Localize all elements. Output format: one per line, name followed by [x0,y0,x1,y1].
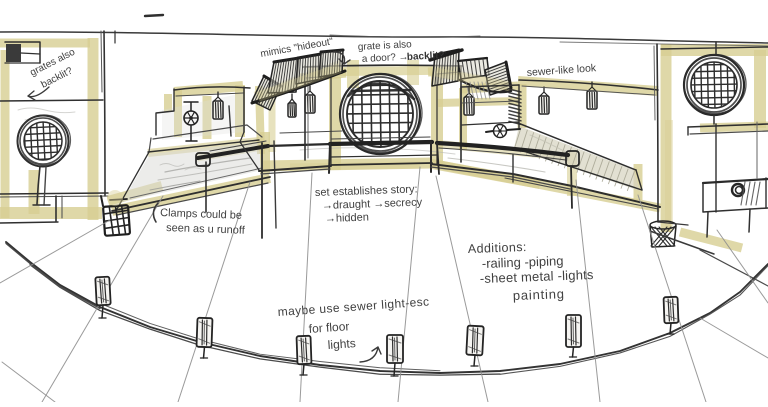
svg-text:Additions:: Additions: [468,240,527,256]
svg-text:backlit?: backlit? [407,50,445,63]
svg-text:lights: lights [327,336,356,352]
svg-text:painting: painting [513,286,565,303]
svg-text:for floor: for floor [308,319,350,336]
svg-text:→hidden: →hidden [325,211,369,225]
